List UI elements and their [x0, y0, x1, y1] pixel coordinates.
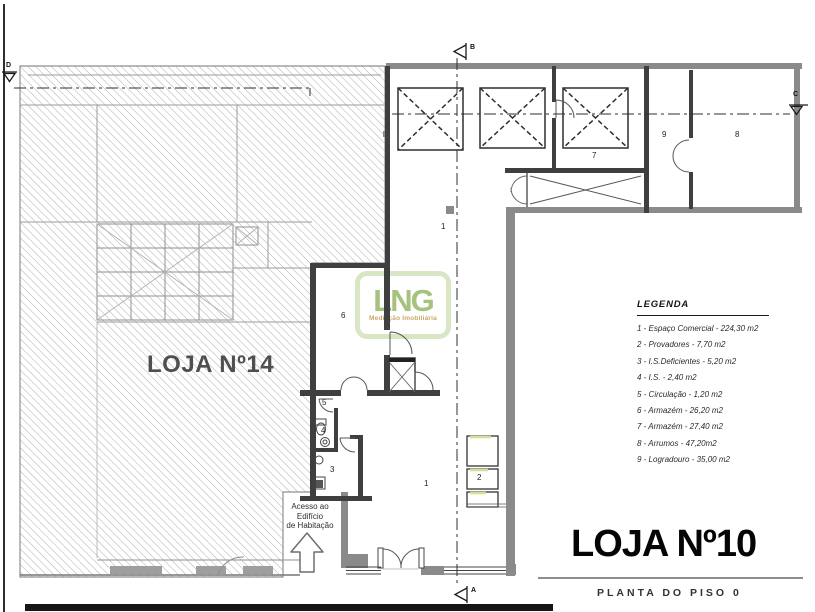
room-label-6: 6	[341, 311, 345, 320]
room-label-8: 8	[735, 130, 739, 139]
room-label-2: 2	[477, 473, 481, 482]
skylight-boxes	[398, 88, 628, 150]
room-label-9: 9	[662, 130, 666, 139]
sheet-title: LOJA Nº10	[571, 523, 756, 566]
drawing-sheet: LNG Mediação Imobiliária	[0, 0, 815, 612]
access-arrow-icon	[291, 533, 323, 572]
room-label-3: 3	[330, 465, 334, 474]
access-note-line: Edifício	[277, 512, 343, 522]
room-label-5: 5	[322, 398, 326, 407]
room-label-1-upper: 1	[441, 222, 445, 231]
room-label-7: 7	[592, 151, 596, 160]
column	[446, 206, 454, 214]
section-marker-a-label: A	[471, 587, 476, 594]
section-marker-c-label: C	[793, 91, 798, 98]
legend-item: 1 - Espaço Comercial - 224,30 m2	[637, 321, 769, 337]
section-marker-b-icon	[454, 43, 466, 60]
legend-items: 1 - Espaço Comercial - 224,30 m2 2 - Pro…	[637, 321, 769, 469]
ramp	[511, 173, 641, 207]
shaft-room	[389, 358, 415, 392]
section-marker-b-label: B	[470, 44, 475, 51]
legend-item: 9 - Logradouro - 35,00 m2	[637, 452, 769, 468]
legend-item: 4 - I.S. - 2,40 m2	[637, 370, 769, 386]
legend-item: 3 - I.S.Deficientes - 5,20 m2	[637, 354, 769, 370]
legend-item: 7 - Armazém - 27,40 m2	[637, 419, 769, 435]
access-note-line: de Habitação	[277, 521, 343, 531]
legend-item: 8 - Arrumos - 47,20m2	[637, 436, 769, 452]
legend-item: 2 - Provadores - 7,70 m2	[637, 337, 769, 353]
room-label-4: 4	[321, 426, 325, 435]
section-marker-a-icon	[455, 586, 467, 603]
room-label-1-lower: 1	[424, 479, 428, 488]
neighbor-shop-label: LOJA Nº14	[147, 351, 274, 379]
sheet-subtitle: PLANTA DO PISO 0	[597, 587, 742, 599]
section-marker-d-label: D	[6, 62, 11, 69]
access-note: Acesso ao Edifício de Habitação	[277, 502, 343, 531]
fitting-cubicles	[467, 436, 506, 507]
access-note-line: Acesso ao	[277, 502, 343, 512]
entrance-door	[378, 548, 424, 569]
legend-item: 5 - Circulação - 1,20 m2	[637, 387, 769, 403]
legend-heading: LEGENDA	[637, 299, 769, 316]
legend: LEGENDA 1 - Espaço Comercial - 224,30 m2…	[637, 294, 769, 469]
legend-item: 6 - Armazém - 26,20 m2	[637, 403, 769, 419]
